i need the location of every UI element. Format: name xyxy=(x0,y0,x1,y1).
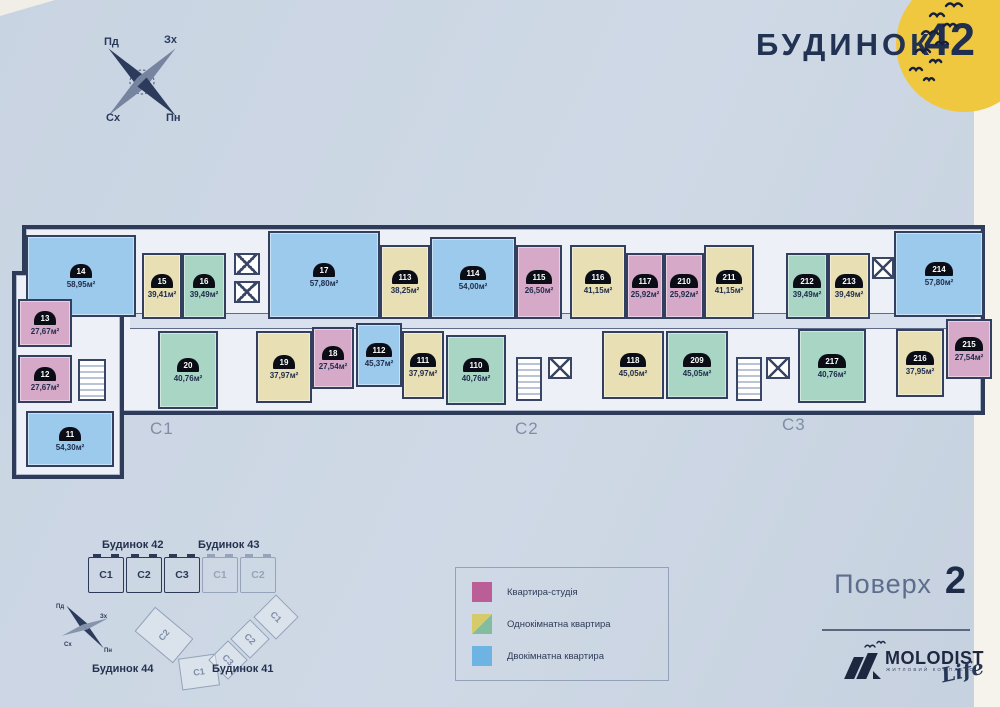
floor-plan: 1458,95м²1539,41м²1639,49м²1757,80м²1133… xyxy=(10,213,995,488)
site-building-44-label: Будинок 44 xyxy=(92,663,154,675)
birds-flock-icon xyxy=(818,0,988,92)
apartment-114[interactable]: 11454,00м² xyxy=(430,237,516,319)
apartment-area: 54,00м² xyxy=(459,282,488,291)
apartment-number-badge: 116 xyxy=(585,270,612,284)
apartment-number-badge: 11 xyxy=(59,427,81,441)
staircase-icon xyxy=(736,357,762,401)
legend-label: Двокімнатна квартира xyxy=(507,651,604,662)
apartment-number-badge: 210 xyxy=(670,274,697,288)
apartment-number-badge: 18 xyxy=(322,346,345,360)
apartment-number-badge: 213 xyxy=(835,274,862,288)
apartment-215[interactable]: 21527,54м² xyxy=(946,319,992,379)
legend-swatch-one-room xyxy=(472,614,492,634)
apartment-13[interactable]: 1327,67м² xyxy=(18,299,72,347)
apartment-18[interactable]: 1827,54м² xyxy=(312,327,354,389)
apartment-17[interactable]: 1757,80м² xyxy=(268,231,380,319)
apartment-number-badge: 212 xyxy=(793,274,820,288)
apartment-number-badge: 118 xyxy=(620,353,647,367)
apartment-number-badge: 19 xyxy=(273,355,296,369)
floor-indicator: Поверх 2 xyxy=(834,560,966,603)
apartment-number-badge: 113 xyxy=(392,270,419,284)
apartment-number-badge: 115 xyxy=(526,270,553,284)
apartment-118[interactable]: 11845,05м² xyxy=(602,331,664,399)
apartment-217[interactable]: 21740,76м² xyxy=(798,329,866,403)
scheme-section-c3: C3 xyxy=(164,557,200,593)
apartment-115[interactable]: 11526,50м² xyxy=(516,245,562,319)
apartment-111[interactable]: 11137,97м² xyxy=(402,331,444,399)
apartment-area: 37,97м² xyxy=(409,369,438,378)
apartment-11[interactable]: 1154,30м² xyxy=(26,411,114,467)
apartment-number-badge: 110 xyxy=(463,358,490,372)
apartment-area: 37,95м² xyxy=(906,367,935,376)
elevator-icon xyxy=(234,253,260,275)
mini-compass-label-north: Пн xyxy=(104,648,112,654)
apartment-area: 39,49м² xyxy=(190,290,219,299)
apartment-area: 37,97м² xyxy=(270,371,299,380)
mini-compass-rose: Пд Зх Сх Пн xyxy=(56,598,116,658)
legend: Квартира-студіяОднокімнатна квартираДвок… xyxy=(455,567,669,681)
apartment-area: 39,49м² xyxy=(835,290,864,299)
apartment-area: 41,15м² xyxy=(715,286,744,295)
apartment-number-badge: 13 xyxy=(34,311,57,325)
apartment-number-badge: 114 xyxy=(460,266,487,280)
apartment-area: 25,92м² xyxy=(670,290,699,299)
apartment-area: 57,80м² xyxy=(310,279,339,288)
legend-item-two-room: Двокімнатна квартира xyxy=(472,646,668,666)
apartment-area: 45,37м² xyxy=(365,359,394,368)
apartment-number-badge: 214 xyxy=(925,262,952,276)
apartment-number-badge: 14 xyxy=(70,264,93,278)
apartment-16[interactable]: 1639,49м² xyxy=(182,253,226,319)
apartment-number-badge: 209 xyxy=(683,353,710,367)
section-label-c3: C3 xyxy=(782,415,806,435)
apartment-area: 27,67м² xyxy=(31,383,60,392)
staircase-icon xyxy=(516,357,542,401)
section-label-c2: C2 xyxy=(515,419,539,439)
apartment-area: 25,92м² xyxy=(631,290,660,299)
apartment-area: 40,76м² xyxy=(818,370,847,379)
apartment-area: 45,05м² xyxy=(683,369,712,378)
apartment-area: 27,67м² xyxy=(31,327,60,336)
apartment-209[interactable]: 20945,05м² xyxy=(666,331,728,399)
apartment-number-badge: 211 xyxy=(716,270,743,284)
compass-star-icon xyxy=(102,42,182,122)
logo-mark-icon xyxy=(845,651,881,681)
elevator-icon xyxy=(548,357,572,379)
apartment-number-badge: 112 xyxy=(366,343,393,357)
apartment-116[interactable]: 11641,15м² xyxy=(570,245,626,319)
scheme-section-c2: C2 xyxy=(240,557,276,593)
elevator-icon xyxy=(234,281,260,303)
apartment-area: 57,80м² xyxy=(925,278,954,287)
site-building-41-label: Будинок 41 xyxy=(212,663,274,675)
apartment-number-badge: 12 xyxy=(34,367,57,381)
apartment-number-badge: 111 xyxy=(410,353,436,367)
site-building-43-label: Будинок 43 xyxy=(198,539,260,551)
apartment-area: 38,25м² xyxy=(391,286,420,295)
scheme-section-c1: C1 xyxy=(88,557,124,593)
apartment-210[interactable]: 21025,92м² xyxy=(664,253,704,319)
apartment-12[interactable]: 1227,67м² xyxy=(18,355,72,403)
apartment-19[interactable]: 1937,97м² xyxy=(256,331,312,403)
scheme-section-c2: C2 xyxy=(126,557,162,593)
apartment-area: 39,41м² xyxy=(148,290,177,299)
legend-label: Однокімнатна квартира xyxy=(507,619,611,630)
legend-label: Квартира-студія xyxy=(507,587,578,598)
mini-compass-label-west: Зх xyxy=(100,614,107,620)
elevator-icon xyxy=(872,257,894,279)
apartment-area: 40,76м² xyxy=(174,374,203,383)
apartment-area: 27,54м² xyxy=(319,362,348,371)
apartment-area: 45,05м² xyxy=(619,369,648,378)
apartment-110[interactable]: 11040,76м² xyxy=(446,335,506,405)
compass-rose: Пд Зх Сх Пн xyxy=(88,34,198,130)
elevator-icon xyxy=(766,357,790,379)
apartment-area: 58,95м² xyxy=(67,280,96,289)
apartment-number-badge: 117 xyxy=(632,274,659,288)
compass-label-west: Зх xyxy=(164,34,177,46)
site-scheme-row: C1C2C3C1C2 xyxy=(88,557,276,593)
legend-swatch-two-room xyxy=(472,646,492,666)
apartment-20[interactable]: 2040,76м² xyxy=(158,331,218,409)
apartment-211[interactable]: 21141,15м² xyxy=(704,245,754,319)
apartment-number-badge: 15 xyxy=(151,274,174,288)
brand-logo: MOLODIST ЖИТЛОВИЙ КОМПЛЕКС Life xyxy=(845,643,990,687)
apartment-117[interactable]: 11725,92м² xyxy=(626,253,664,319)
apartment-112[interactable]: 11245,37м² xyxy=(356,323,402,387)
scheme-v-section-c2: C2 xyxy=(135,607,194,664)
legend-swatch-studio xyxy=(472,582,492,602)
apartment-area: 27,54м² xyxy=(955,353,984,362)
floor-label: Поверх xyxy=(834,569,932,600)
photo-corner xyxy=(0,0,55,16)
compass-label-east: Сх xyxy=(106,112,120,124)
mini-compass-label-south: Пд xyxy=(56,604,64,610)
mini-compass-label-east: Сх xyxy=(64,642,72,648)
site-building-42-label: Будинок 42 xyxy=(102,539,164,551)
compass-label-north: Пн xyxy=(166,112,181,124)
apartment-212[interactable]: 21239,49м² xyxy=(786,253,828,319)
apartment-214[interactable]: 21457,80м² xyxy=(894,231,984,317)
section-label-c1: C1 xyxy=(150,419,174,439)
site-scheme-v: C2C1C3C2C1 xyxy=(118,598,308,698)
apartment-number-badge: 217 xyxy=(818,354,845,368)
apartment-area: 41,15м² xyxy=(584,286,613,295)
compass-label-south: Пд xyxy=(104,36,119,48)
apartment-area: 39,49м² xyxy=(793,290,822,299)
apartment-area: 54,30м² xyxy=(56,443,85,452)
apartment-number-badge: 16 xyxy=(193,274,216,288)
legend-item-one-room: Однокімнатна квартира xyxy=(472,614,668,634)
apartment-area: 26,50м² xyxy=(525,286,554,295)
apartment-number-badge: 215 xyxy=(955,337,982,351)
apartment-number-badge: 17 xyxy=(313,263,336,277)
apartment-15[interactable]: 1539,41м² xyxy=(142,253,182,319)
apartment-number-badge: 20 xyxy=(177,358,200,372)
scheme-section-c1: C1 xyxy=(202,557,238,593)
staircase-icon xyxy=(78,359,106,401)
apartment-number-badge: 216 xyxy=(906,351,933,365)
legend-item-studio: Квартира-студія xyxy=(472,582,668,602)
apartment-113[interactable]: 11338,25м² xyxy=(380,245,430,319)
floor-number: 2 xyxy=(945,560,966,603)
apartment-area: 40,76м² xyxy=(462,374,491,383)
apartment-213[interactable]: 21339,49м² xyxy=(828,253,870,319)
footer-divider xyxy=(822,629,970,631)
apartment-216[interactable]: 21637,95м² xyxy=(896,329,944,397)
